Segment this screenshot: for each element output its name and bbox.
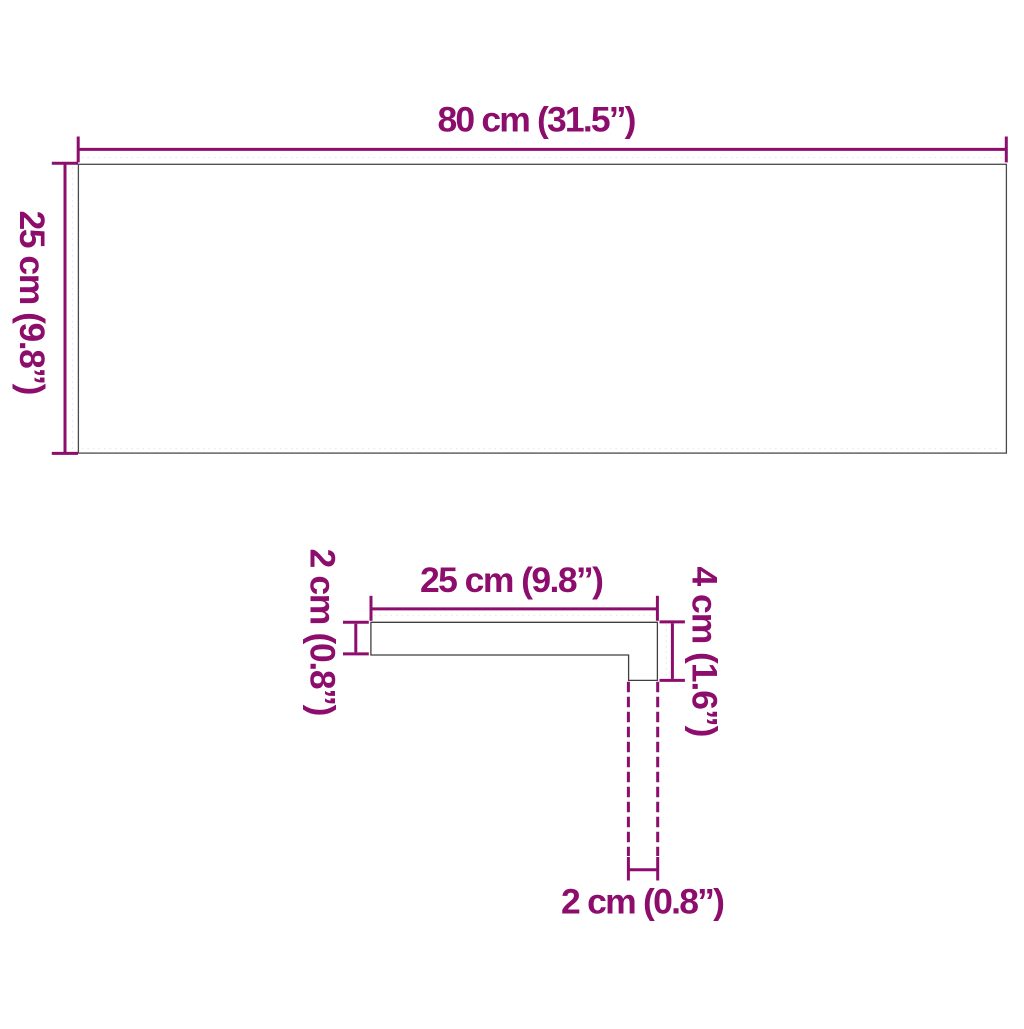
svg-text:4 cm (1.6”): 4 cm (1.6”): [685, 567, 725, 738]
svg-text:25 cm (9.8”): 25 cm (9.8”): [420, 560, 604, 600]
svg-text:25 cm (9.8”): 25 cm (9.8”): [12, 211, 52, 396]
svg-text:2 cm (0.8”): 2 cm (0.8”): [561, 881, 725, 921]
svg-text:80 cm (31.5”): 80 cm (31.5”): [438, 100, 637, 140]
svg-text:2 cm (0.8”): 2 cm (0.8”): [303, 549, 343, 717]
